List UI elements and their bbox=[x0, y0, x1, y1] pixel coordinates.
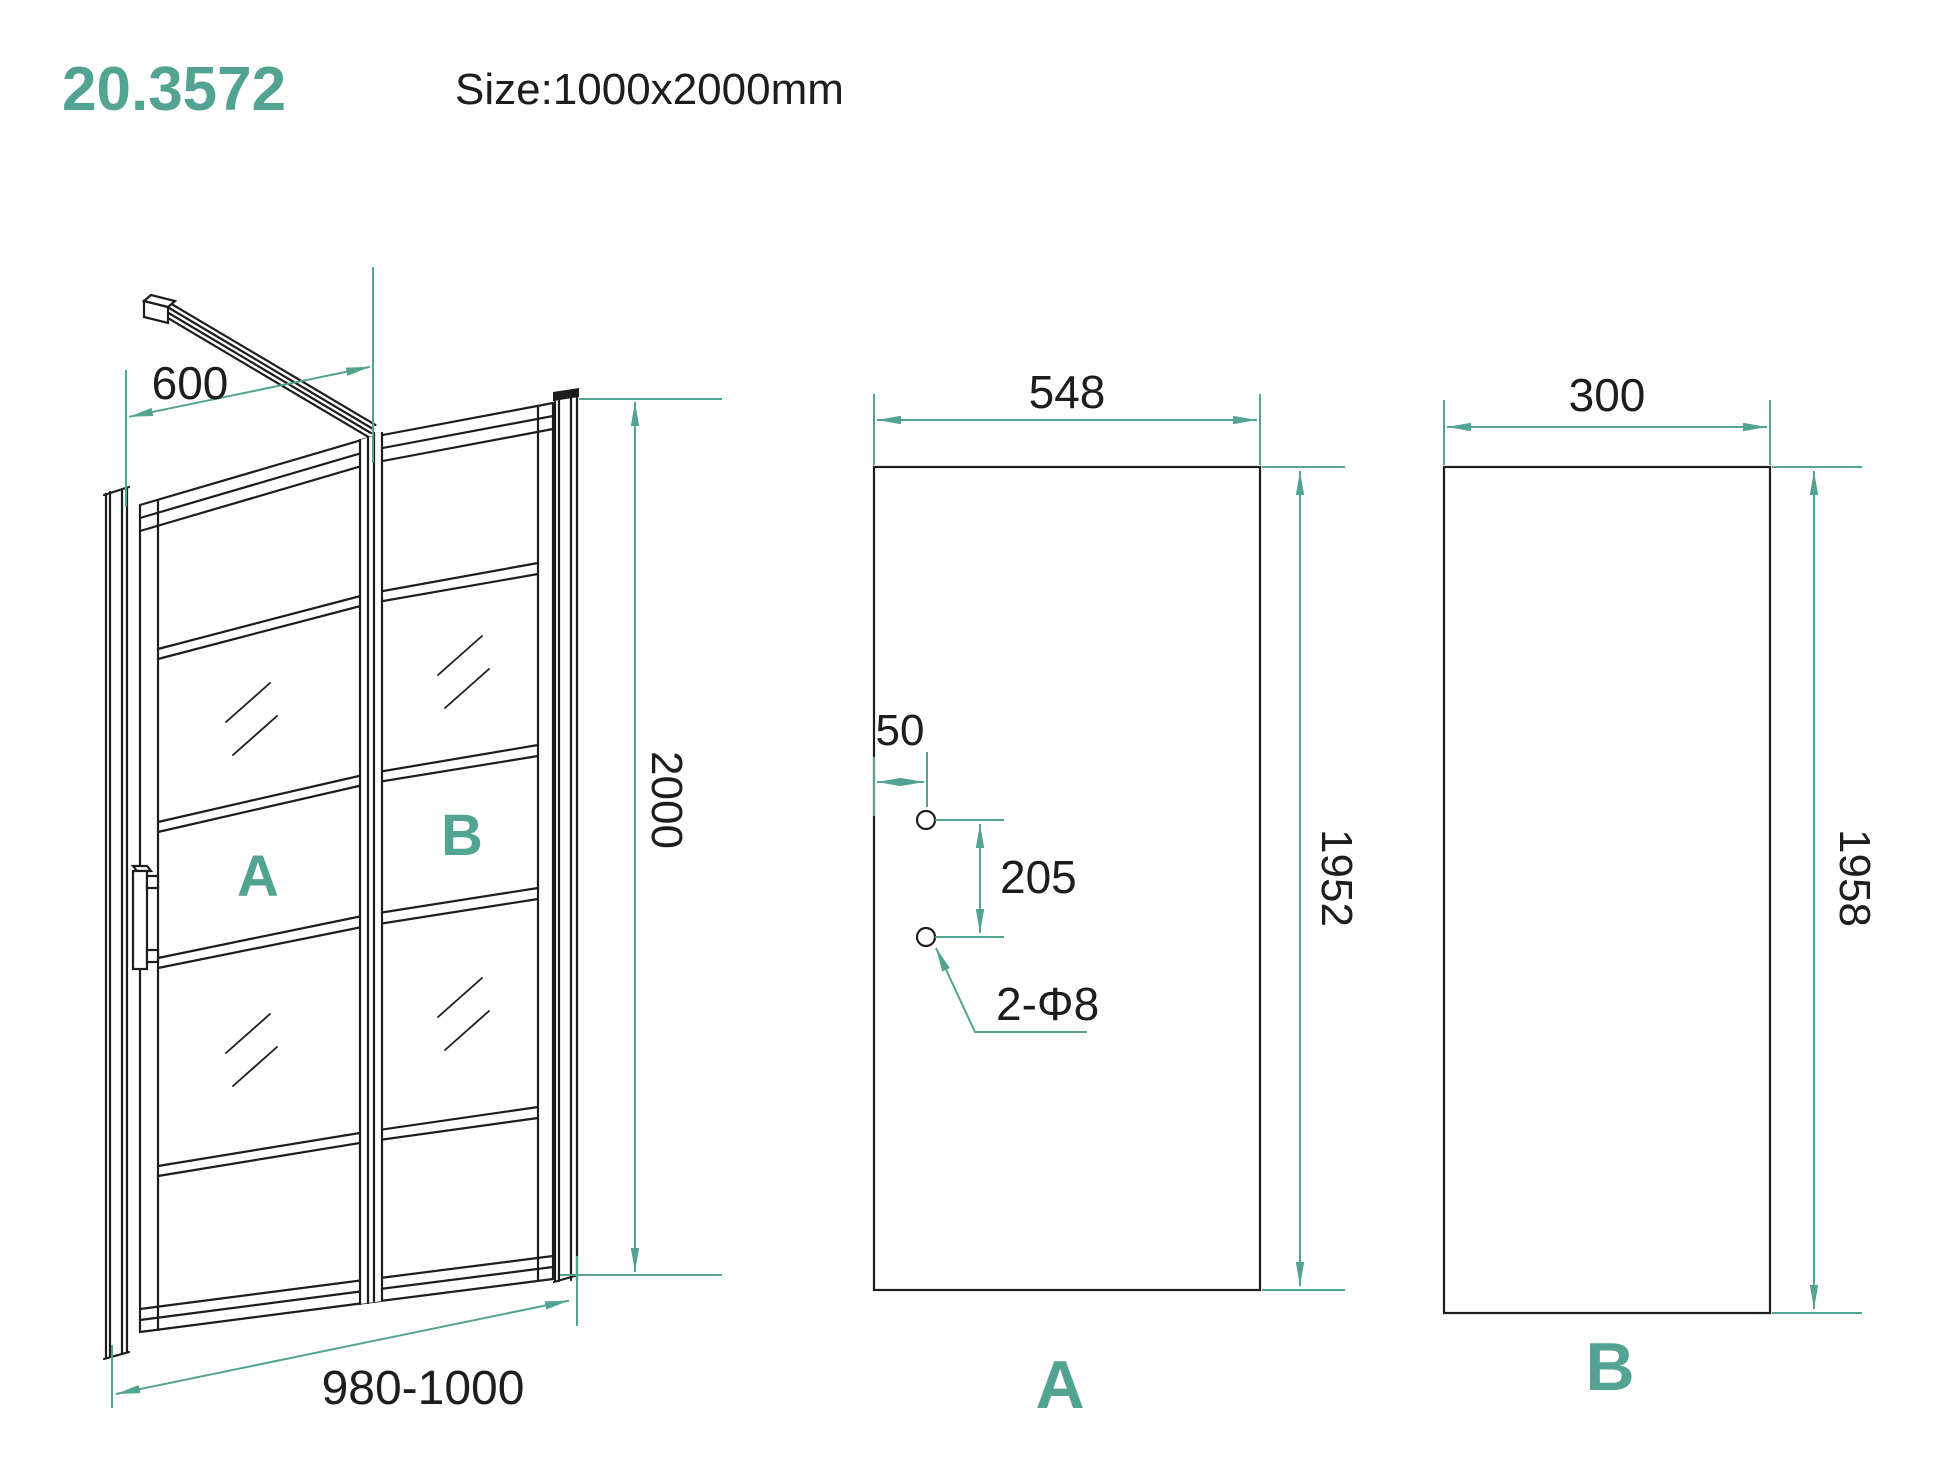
dim-hole-spacing: 205 bbox=[935, 820, 1077, 937]
panel-b-label: B bbox=[1585, 1329, 1634, 1405]
wall-profile-right bbox=[553, 388, 579, 1282]
dim-a-height: 1952 bbox=[1262, 467, 1361, 1290]
dim-label-980-1000: 980-1000 bbox=[322, 1362, 525, 1415]
dim-label-50: 50 bbox=[876, 706, 925, 755]
dim-label-1952: 1952 bbox=[1312, 829, 1361, 927]
dim-adjustable-width: 980-1000 bbox=[112, 1256, 577, 1415]
wall-profile-left bbox=[104, 487, 129, 1359]
model-number: 20.3572 bbox=[62, 55, 286, 124]
dim-total-height: 2000 bbox=[560, 399, 722, 1275]
assembly-panel-a-label: A bbox=[237, 844, 279, 909]
panel-a-label: A bbox=[1035, 1347, 1084, 1423]
technical-drawing: 20.3572 Size:1000x2000mm bbox=[0, 0, 1946, 1470]
hole-callout: 2-Φ8 bbox=[936, 948, 1099, 1032]
size-label: Size:1000x2000mm bbox=[455, 65, 844, 114]
drawing-page: 20.3572 Size:1000x2000mm bbox=[0, 0, 1946, 1470]
dim-hole-offset: 50 bbox=[874, 706, 927, 816]
dim-label-548: 548 bbox=[1029, 366, 1106, 418]
center-mullion bbox=[360, 433, 382, 1304]
door-handle bbox=[133, 866, 158, 969]
panel-b-glass bbox=[1444, 467, 1770, 1313]
dim-label-300: 300 bbox=[1569, 369, 1646, 421]
panel-a-detail: 548 1952 50 205 2-Φ8 A bbox=[874, 366, 1361, 1423]
dim-b-width: 300 bbox=[1444, 369, 1770, 465]
dim-label-1958: 1958 bbox=[1830, 829, 1879, 927]
assembly-panel-b-label: B bbox=[441, 803, 483, 868]
glazing-bars bbox=[158, 563, 538, 1176]
dim-label-600: 600 bbox=[152, 357, 229, 409]
mounting-hole-lower bbox=[917, 928, 935, 946]
dim-a-width: 548 bbox=[874, 366, 1260, 465]
panel-b-detail: 300 1958 B bbox=[1444, 369, 1879, 1405]
dim-label-205: 205 bbox=[1000, 851, 1077, 903]
dim-label-2phi8: 2-Φ8 bbox=[996, 978, 1099, 1030]
mounting-hole-upper bbox=[917, 811, 935, 829]
dim-b-height: 1958 bbox=[1772, 467, 1879, 1313]
assembly-view: 600 2000 980-1000 A B bbox=[104, 267, 722, 1415]
dim-label-2000: 2000 bbox=[642, 751, 691, 849]
